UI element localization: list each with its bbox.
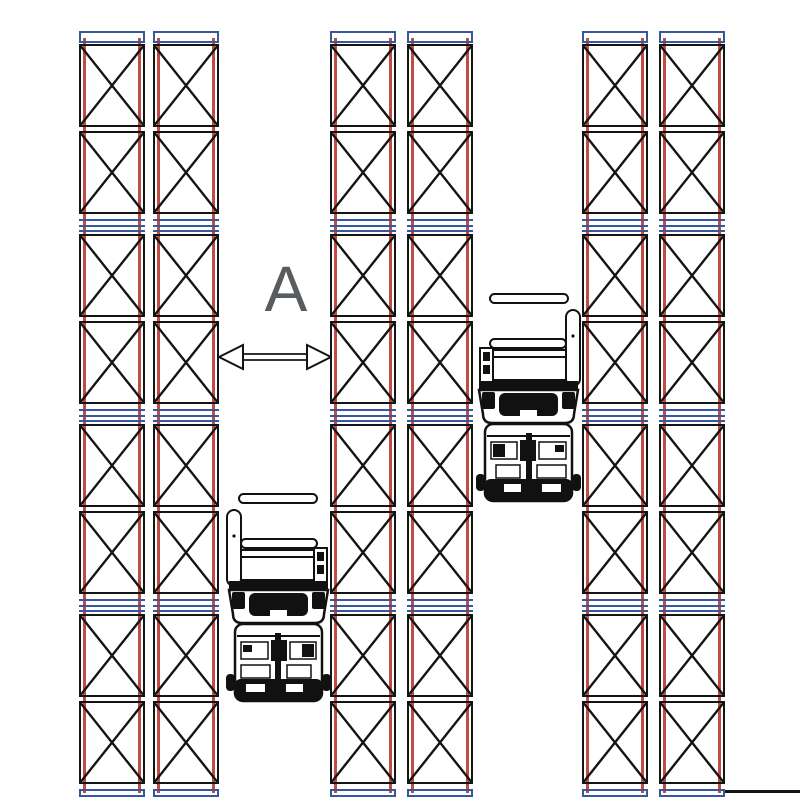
- rack-column: [153, 31, 219, 797]
- cross-brace-icon: [407, 424, 473, 507]
- cross-brace-icon: [659, 701, 725, 784]
- rack-cell: [659, 614, 725, 697]
- cross-aisle-beam: [330, 219, 396, 232]
- rack-cell: [407, 614, 473, 697]
- cross-brace-icon: [659, 321, 725, 404]
- beam-cap: [79, 31, 145, 43]
- cross-brace-icon: [330, 131, 396, 214]
- cross-brace-icon: [153, 131, 219, 214]
- cross-aisle-beam: [79, 409, 145, 422]
- cross-brace-icon: [79, 44, 145, 127]
- rack-cell: [659, 511, 725, 594]
- rack-cell: [582, 424, 648, 507]
- rack-cell: [79, 511, 145, 594]
- rack-cell: [79, 44, 145, 127]
- cross-brace-icon: [79, 321, 145, 404]
- rack-cell: [330, 131, 396, 214]
- beam-cap: [330, 31, 396, 43]
- rack-cell: [79, 424, 145, 507]
- rack-column: [407, 31, 473, 797]
- cross-aisle-beam: [79, 599, 145, 612]
- cross-brace-icon: [79, 424, 145, 507]
- beam-cap: [330, 789, 396, 797]
- rack-cell: [153, 701, 219, 784]
- cross-brace-icon: [659, 614, 725, 697]
- rack-cell: [407, 321, 473, 404]
- rack-cell: [659, 44, 725, 127]
- cross-brace-icon: [659, 424, 725, 507]
- cross-brace-icon: [582, 234, 648, 317]
- cross-brace-icon: [153, 511, 219, 594]
- cross-brace-icon: [582, 614, 648, 697]
- cross-aisle-beam: [659, 409, 725, 422]
- cross-brace-icon: [153, 44, 219, 127]
- cross-brace-icon: [582, 511, 648, 594]
- rack-cell: [153, 614, 219, 697]
- rack-cell: [153, 424, 219, 507]
- cross-brace-icon: [153, 424, 219, 507]
- cross-aisle-beam: [79, 219, 145, 232]
- beam-cap: [582, 31, 648, 43]
- rack-cell: [659, 321, 725, 404]
- cross-aisle-beam: [153, 599, 219, 612]
- forklift-icon-2: [476, 293, 581, 508]
- rack-cell: [330, 701, 396, 784]
- rack-column: [659, 31, 725, 797]
- cross-brace-icon: [79, 701, 145, 784]
- cross-brace-icon: [582, 131, 648, 214]
- cross-aisle-beam: [582, 599, 648, 612]
- beam-cap: [407, 31, 473, 43]
- cross-brace-icon: [659, 44, 725, 127]
- cross-brace-icon: [407, 321, 473, 404]
- rack-cell: [79, 234, 145, 317]
- rack-cell: [330, 511, 396, 594]
- rack-cell: [407, 511, 473, 594]
- cross-aisle-beam: [407, 409, 473, 422]
- floor-line: [725, 790, 800, 793]
- rack-cell: [330, 321, 396, 404]
- beam-cap: [582, 789, 648, 797]
- beam-cap: [659, 31, 725, 43]
- rack-cell: [330, 234, 396, 317]
- rack-cell: [153, 131, 219, 214]
- cross-brace-icon: [659, 234, 725, 317]
- cross-brace-icon: [582, 321, 648, 404]
- rack-cell: [582, 131, 648, 214]
- rack-cell: [582, 701, 648, 784]
- beam-cap: [153, 31, 219, 43]
- rack-cell: [79, 131, 145, 214]
- cross-brace-icon: [407, 131, 473, 214]
- cross-brace-icon: [79, 614, 145, 697]
- rack-cell: [582, 614, 648, 697]
- cross-brace-icon: [330, 424, 396, 507]
- rack-cell: [79, 614, 145, 697]
- cross-brace-icon: [582, 701, 648, 784]
- rack-column: [582, 31, 648, 797]
- cross-brace-icon: [153, 614, 219, 697]
- cross-brace-icon: [330, 511, 396, 594]
- cross-brace-icon: [330, 234, 396, 317]
- rack-cell: [582, 321, 648, 404]
- beam-cap: [153, 789, 219, 797]
- cross-aisle-beam: [659, 219, 725, 232]
- rack-column: [330, 31, 396, 797]
- cross-aisle-beam: [659, 599, 725, 612]
- forklift-icon-1: [226, 493, 331, 708]
- aisle-width-label: A: [260, 257, 312, 321]
- cross-brace-icon: [582, 424, 648, 507]
- rack-cell: [330, 424, 396, 507]
- rack-cell: [407, 131, 473, 214]
- rack-cell: [79, 701, 145, 784]
- rack-cell: [407, 701, 473, 784]
- cross-brace-icon: [79, 234, 145, 317]
- cross-brace-icon: [330, 44, 396, 127]
- rack-cell: [153, 511, 219, 594]
- cross-brace-icon: [330, 701, 396, 784]
- cross-brace-icon: [407, 234, 473, 317]
- rack-cell: [659, 424, 725, 507]
- beam-cap: [659, 789, 725, 797]
- rack-cell: [153, 234, 219, 317]
- cross-brace-icon: [153, 234, 219, 317]
- cross-aisle-beam: [153, 409, 219, 422]
- warehouse-plan-canvas: A: [0, 0, 800, 800]
- rack-cell: [153, 321, 219, 404]
- beam-cap: [79, 789, 145, 797]
- rack-cell: [153, 44, 219, 127]
- rack-cell: [659, 701, 725, 784]
- cross-brace-icon: [79, 511, 145, 594]
- cross-brace-icon: [79, 131, 145, 214]
- cross-brace-icon: [659, 131, 725, 214]
- rack-cell: [330, 44, 396, 127]
- cross-aisle-beam: [582, 219, 648, 232]
- cross-brace-icon: [330, 614, 396, 697]
- cross-aisle-beam: [407, 219, 473, 232]
- rack-cell: [582, 44, 648, 127]
- rack-cell: [407, 234, 473, 317]
- beam-cap: [407, 789, 473, 797]
- cross-brace-icon: [330, 321, 396, 404]
- rack-column: [79, 31, 145, 797]
- cross-brace-icon: [407, 44, 473, 127]
- cross-brace-icon: [153, 701, 219, 784]
- cross-brace-icon: [407, 511, 473, 594]
- cross-aisle-beam: [407, 599, 473, 612]
- cross-aisle-beam: [330, 599, 396, 612]
- cross-brace-icon: [153, 321, 219, 404]
- cross-brace-icon: [659, 511, 725, 594]
- cross-aisle-beam: [582, 409, 648, 422]
- aisle-width-arrow-icon: [218, 342, 332, 372]
- rack-cell: [582, 234, 648, 317]
- rack-cell: [659, 131, 725, 214]
- cross-brace-icon: [407, 614, 473, 697]
- rack-cell: [330, 614, 396, 697]
- cross-aisle-beam: [330, 409, 396, 422]
- rack-cell: [407, 44, 473, 127]
- rack-cell: [659, 234, 725, 317]
- cross-brace-icon: [407, 701, 473, 784]
- cross-aisle-beam: [153, 219, 219, 232]
- rack-cell: [582, 511, 648, 594]
- cross-brace-icon: [582, 44, 648, 127]
- rack-cell: [407, 424, 473, 507]
- rack-cell: [79, 321, 145, 404]
